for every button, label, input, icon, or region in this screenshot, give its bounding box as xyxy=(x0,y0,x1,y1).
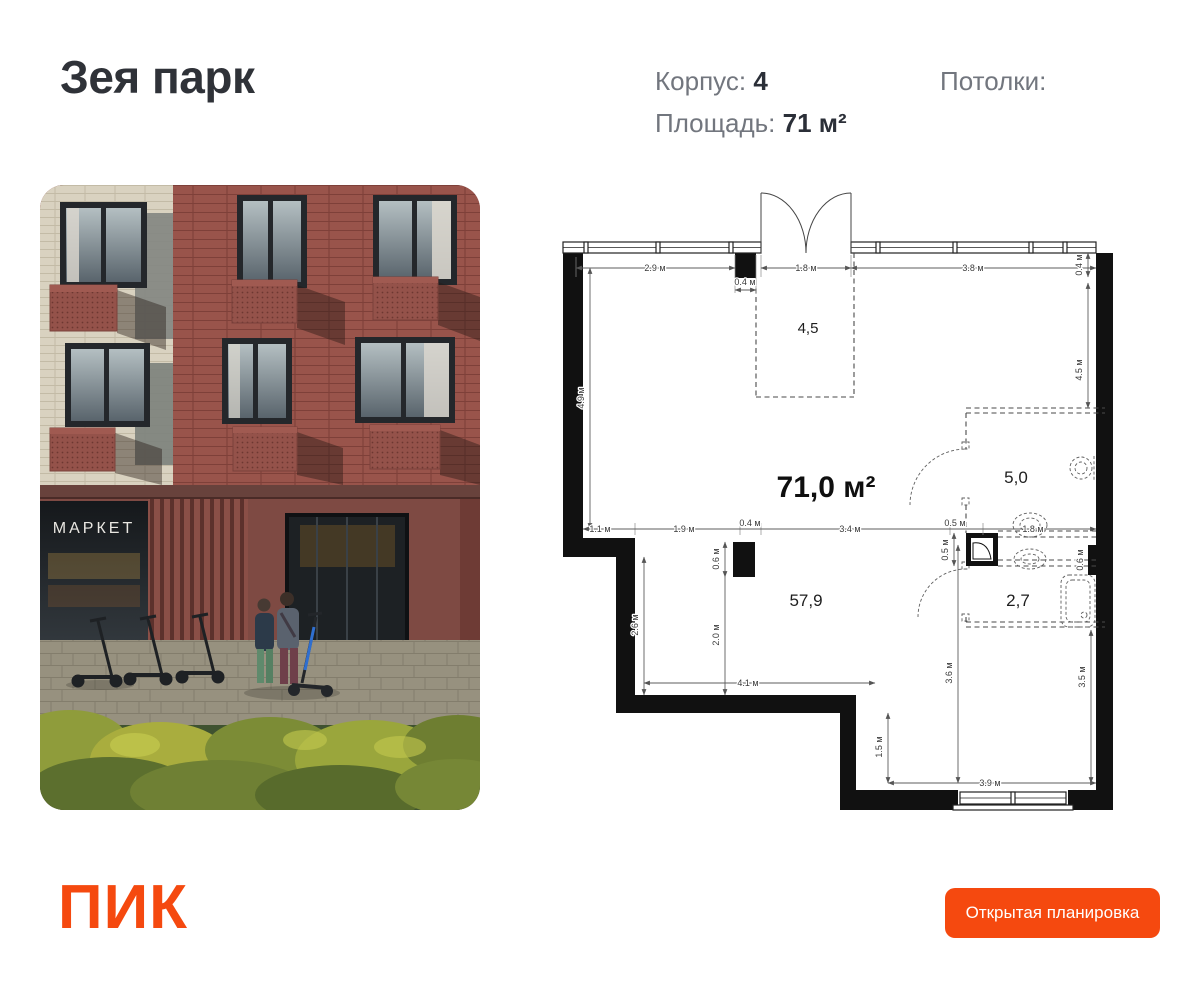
room-area-label: 2,7 xyxy=(1006,591,1030,610)
sink-round-icon xyxy=(1070,457,1092,479)
area-value: 71 м² xyxy=(783,108,847,138)
building-photo-art: МАРКЕТ xyxy=(40,185,480,810)
facade-windows-row1 xyxy=(60,195,457,288)
dim-label: 0.4 м xyxy=(739,518,760,528)
open-layout-button[interactable]: Открытая планировка xyxy=(945,888,1160,938)
dim-label: 2.9 м xyxy=(644,263,665,273)
area-label: Площадь: xyxy=(655,108,775,138)
dim-label: 3.5 м xyxy=(1077,666,1087,687)
dim-label: 3.4 м xyxy=(839,524,860,534)
dim-label: 3.8 м xyxy=(962,263,983,273)
korpus-value: 4 xyxy=(753,66,767,96)
bushes xyxy=(40,710,480,810)
facade-windows-row2 xyxy=(65,337,455,427)
room-area-label: 4,5 xyxy=(798,320,819,337)
dim-label: 0.4 м xyxy=(1074,254,1084,275)
dim-label: 3.9 м xyxy=(979,778,1000,788)
dim-label: 2.0 м xyxy=(711,624,721,645)
dim-label: 1.8 м xyxy=(795,263,816,273)
dim-label: 0.6 м xyxy=(1075,549,1085,570)
building-photo: МАРКЕТ xyxy=(40,185,480,810)
korpus-label: Корпус: xyxy=(655,66,746,96)
room-labels: 4,5 71,0 м² 57,9 5,0 2,7 xyxy=(777,320,1030,610)
floor-plan-drawing: 2.9 м 0.4 м 1.8 м 3.8 м 0.4 м 4.9 м 4.5 … xyxy=(558,185,1120,815)
ventilation-shaft xyxy=(966,533,998,566)
page-title: Зея парк xyxy=(60,50,255,104)
dim-label: 4.9 м xyxy=(576,387,586,408)
spec-area: Площадь: 71 м² xyxy=(655,108,847,139)
room-area-label: 57,9 xyxy=(789,591,822,610)
market-sign: МАРКЕТ xyxy=(53,520,135,537)
dim-label: 1.8 м xyxy=(1022,524,1043,534)
dim-label: 0.5 м xyxy=(944,518,965,528)
dim-label: 0.6 м xyxy=(711,548,721,569)
spec-korpus: Корпус: 4 xyxy=(655,66,768,97)
dim-label: 1.9 м xyxy=(673,524,694,534)
ceilings-label: Потолки: xyxy=(940,66,1046,96)
dim-label: 0.5 м xyxy=(940,539,950,560)
dim-label: 1.5 м xyxy=(874,736,884,757)
floor-plan: 2.9 м 0.4 м 1.8 м 3.8 м 0.4 м 4.9 м 4.5 … xyxy=(558,185,1120,815)
plan-bottom-window xyxy=(953,790,1073,810)
dim-label: 4.5 м xyxy=(1074,359,1084,380)
dim-label: 0.4 м xyxy=(734,277,755,287)
room-area-label: 5,0 xyxy=(1004,468,1028,487)
total-area-label: 71,0 м² xyxy=(777,471,876,504)
dim-label: 3.6 м xyxy=(944,662,954,683)
dim-label: 1.1 м xyxy=(589,524,610,534)
spec-ceilings: Потолки: xyxy=(940,66,1046,97)
entrance-door xyxy=(761,193,851,253)
dim-label: 4.1 м xyxy=(737,678,758,688)
dim-label: 2.6 м xyxy=(630,614,640,635)
plan-top-windows xyxy=(563,242,1096,253)
pik-logo: ПИК xyxy=(58,872,188,943)
